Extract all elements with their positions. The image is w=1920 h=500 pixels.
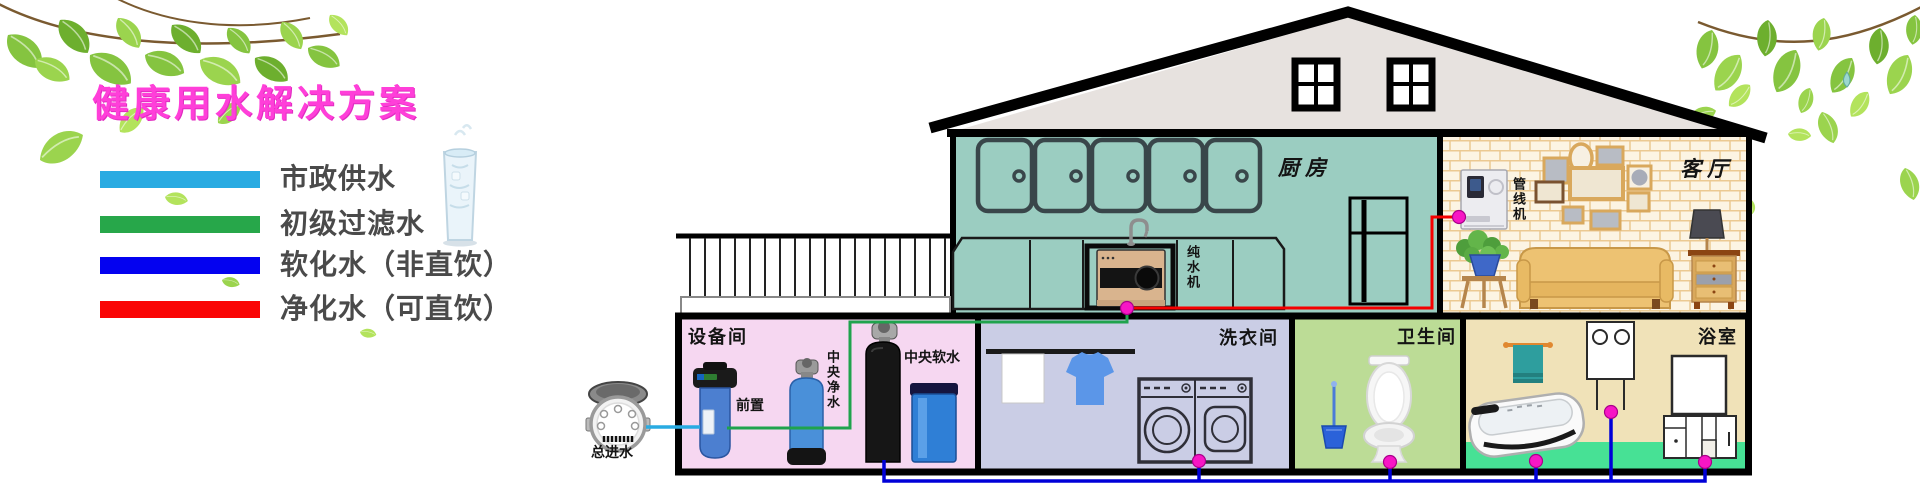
prefilter-device [693, 362, 737, 458]
legend-swatch-filtered [100, 216, 260, 233]
room-label-living-room: 客厅 [1680, 159, 1734, 180]
pure-water-machine [1097, 250, 1165, 306]
water-glass-icon [443, 125, 477, 246]
legend-swatch-softened [100, 257, 260, 274]
legend-label-softened: 软化水（非直饮） [280, 252, 512, 280]
room-label-equipment-room: 设备间 [688, 328, 748, 346]
legend-swatch-purified [100, 301, 260, 318]
device-label-prefilter: 前置 [736, 400, 764, 414]
device-label-central-purifier: 中央净水 [826, 350, 839, 410]
room-label-kitchen: 厨房 [1278, 158, 1332, 179]
side-table-icon [1688, 250, 1740, 309]
device-label-pipeline-machine: 管线机 [1512, 177, 1525, 222]
balcony-railing [676, 236, 951, 316]
hanging-sheet [1002, 354, 1044, 403]
room-label-laundry-room: 洗衣间 [1219, 329, 1279, 347]
page-title: 健康用水解决方案 [92, 86, 420, 123]
device-label-central-softener: 中央软水 [904, 352, 960, 366]
room-label-bathroom: 浴室 [1698, 328, 1738, 346]
attic-window [1390, 61, 1432, 108]
legend-label-filtered: 初级过滤水 [280, 211, 425, 239]
sink-cabinet-icon [1664, 416, 1736, 458]
banner: 健康用水解决方案 市政供水 初级过滤水 软化水（非直饮） 净化水（可直饮） 厨房… [0, 0, 1920, 500]
bathroom-mirror [1672, 356, 1726, 414]
device-label-main-inlet: 总进水 [591, 447, 633, 461]
roof [930, 12, 1766, 138]
attic-window [1295, 61, 1337, 108]
room-label-toilet-room: 卫生间 [1397, 328, 1457, 346]
water-meter-icon [586, 382, 650, 451]
brine-tank-device [910, 383, 958, 462]
device-label-pure-water-machine: 纯水机 [1186, 245, 1199, 290]
legend-label-municipal: 市政供水 [280, 166, 396, 194]
sofa-icon [1517, 248, 1673, 309]
legend-label-purified: 净化水（可直饮） [280, 296, 512, 324]
pipeline-machine [1461, 170, 1507, 229]
legend-swatch-municipal [100, 171, 260, 188]
